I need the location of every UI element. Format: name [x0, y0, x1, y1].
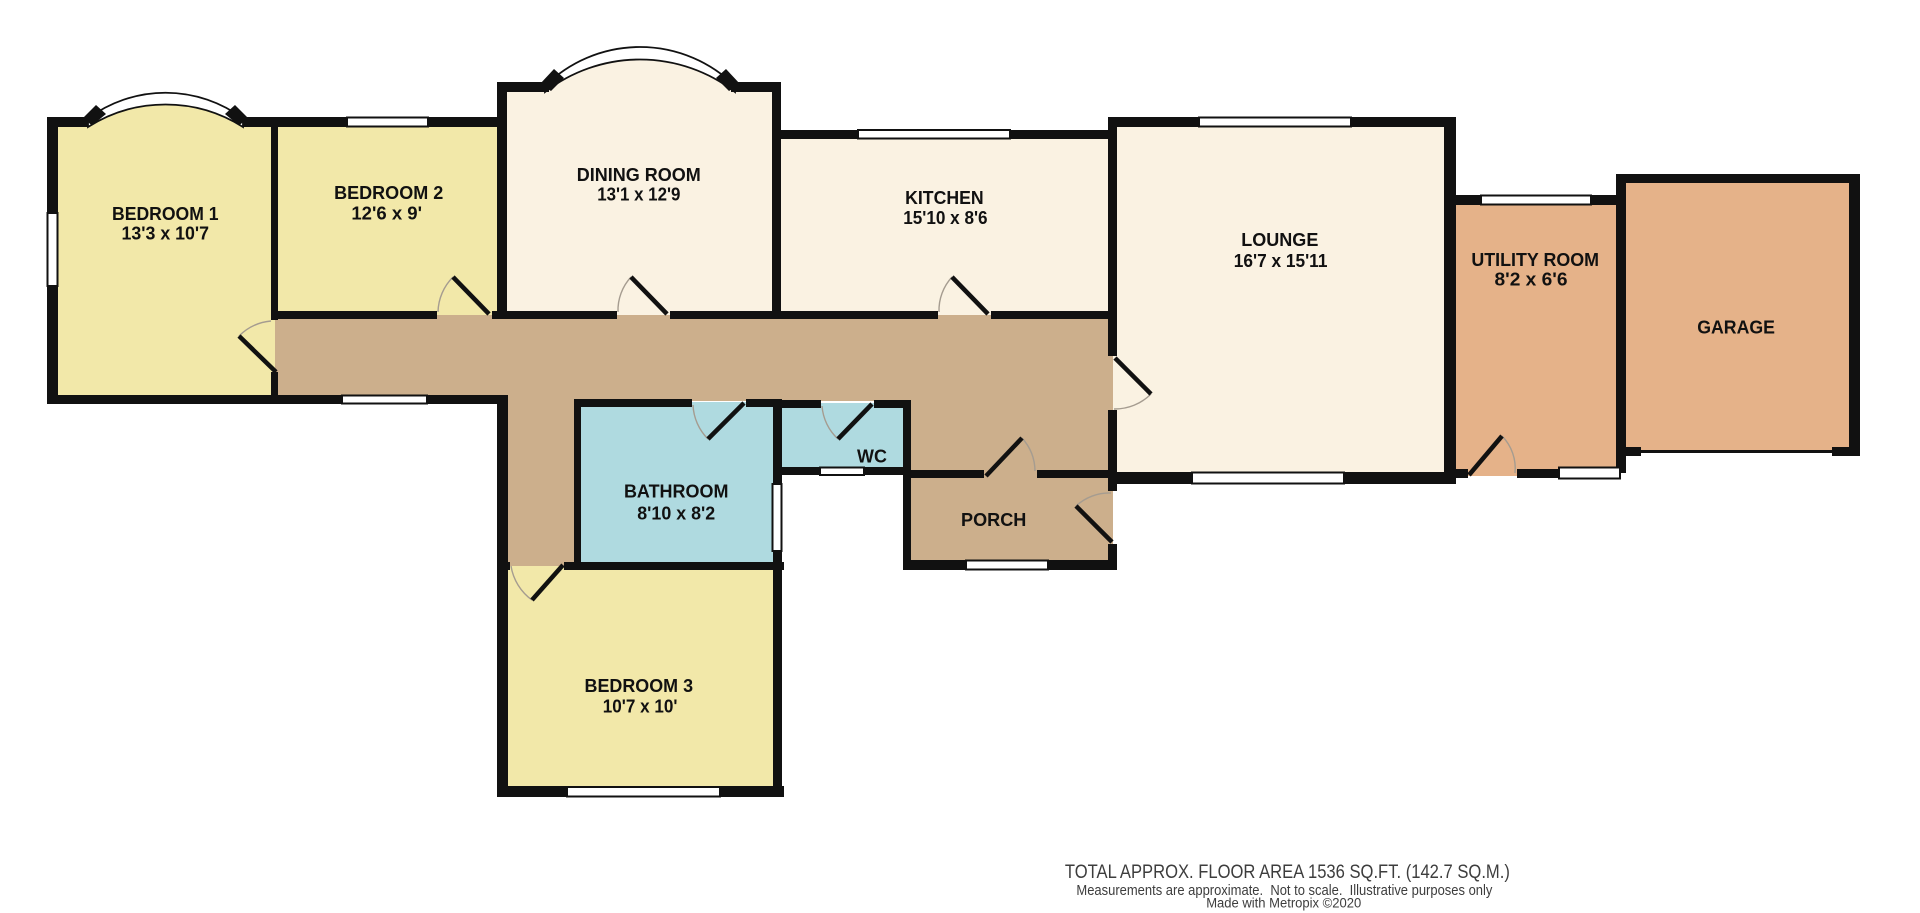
svg-text:13'3 x 10'7: 13'3 x 10'7 — [122, 223, 210, 244]
svg-text:16'7 x 15'11: 16'7 x 15'11 — [1234, 250, 1328, 271]
svg-text:15'10 x 8'6: 15'10 x 8'6 — [903, 207, 987, 228]
svg-text:DINING ROOM: DINING ROOM — [577, 164, 701, 185]
svg-text:12'6 x 9': 12'6 x 9' — [351, 203, 422, 224]
svg-text:8'2 x 6'6: 8'2 x 6'6 — [1495, 269, 1568, 290]
svg-text:13'1 x 12'9: 13'1 x 12'9 — [597, 184, 680, 205]
svg-text:GARAGE: GARAGE — [1697, 316, 1775, 337]
svg-text:PORCH: PORCH — [961, 509, 1026, 530]
svg-text:WC: WC — [857, 446, 887, 467]
svg-text:UTILITY ROOM: UTILITY ROOM — [1471, 249, 1599, 270]
svg-text:BEDROOM 1: BEDROOM 1 — [112, 203, 219, 224]
svg-text:Made with Metropix ©2020: Made with Metropix ©2020 — [1206, 896, 1361, 912]
svg-text:TOTAL APPROX. FLOOR AREA 1536: TOTAL APPROX. FLOOR AREA 1536 SQ.FT. (14… — [1065, 862, 1510, 883]
svg-text:BEDROOM 3: BEDROOM 3 — [585, 675, 694, 696]
svg-text:KITCHEN: KITCHEN — [905, 187, 984, 208]
svg-text:BATHROOM: BATHROOM — [624, 481, 729, 502]
svg-text:BEDROOM 2: BEDROOM 2 — [334, 182, 443, 203]
svg-text:8'10 x 8'2: 8'10 x 8'2 — [637, 503, 715, 524]
svg-text:10'7 x 10': 10'7 x 10' — [603, 696, 678, 717]
svg-text:LOUNGE: LOUNGE — [1241, 229, 1318, 250]
